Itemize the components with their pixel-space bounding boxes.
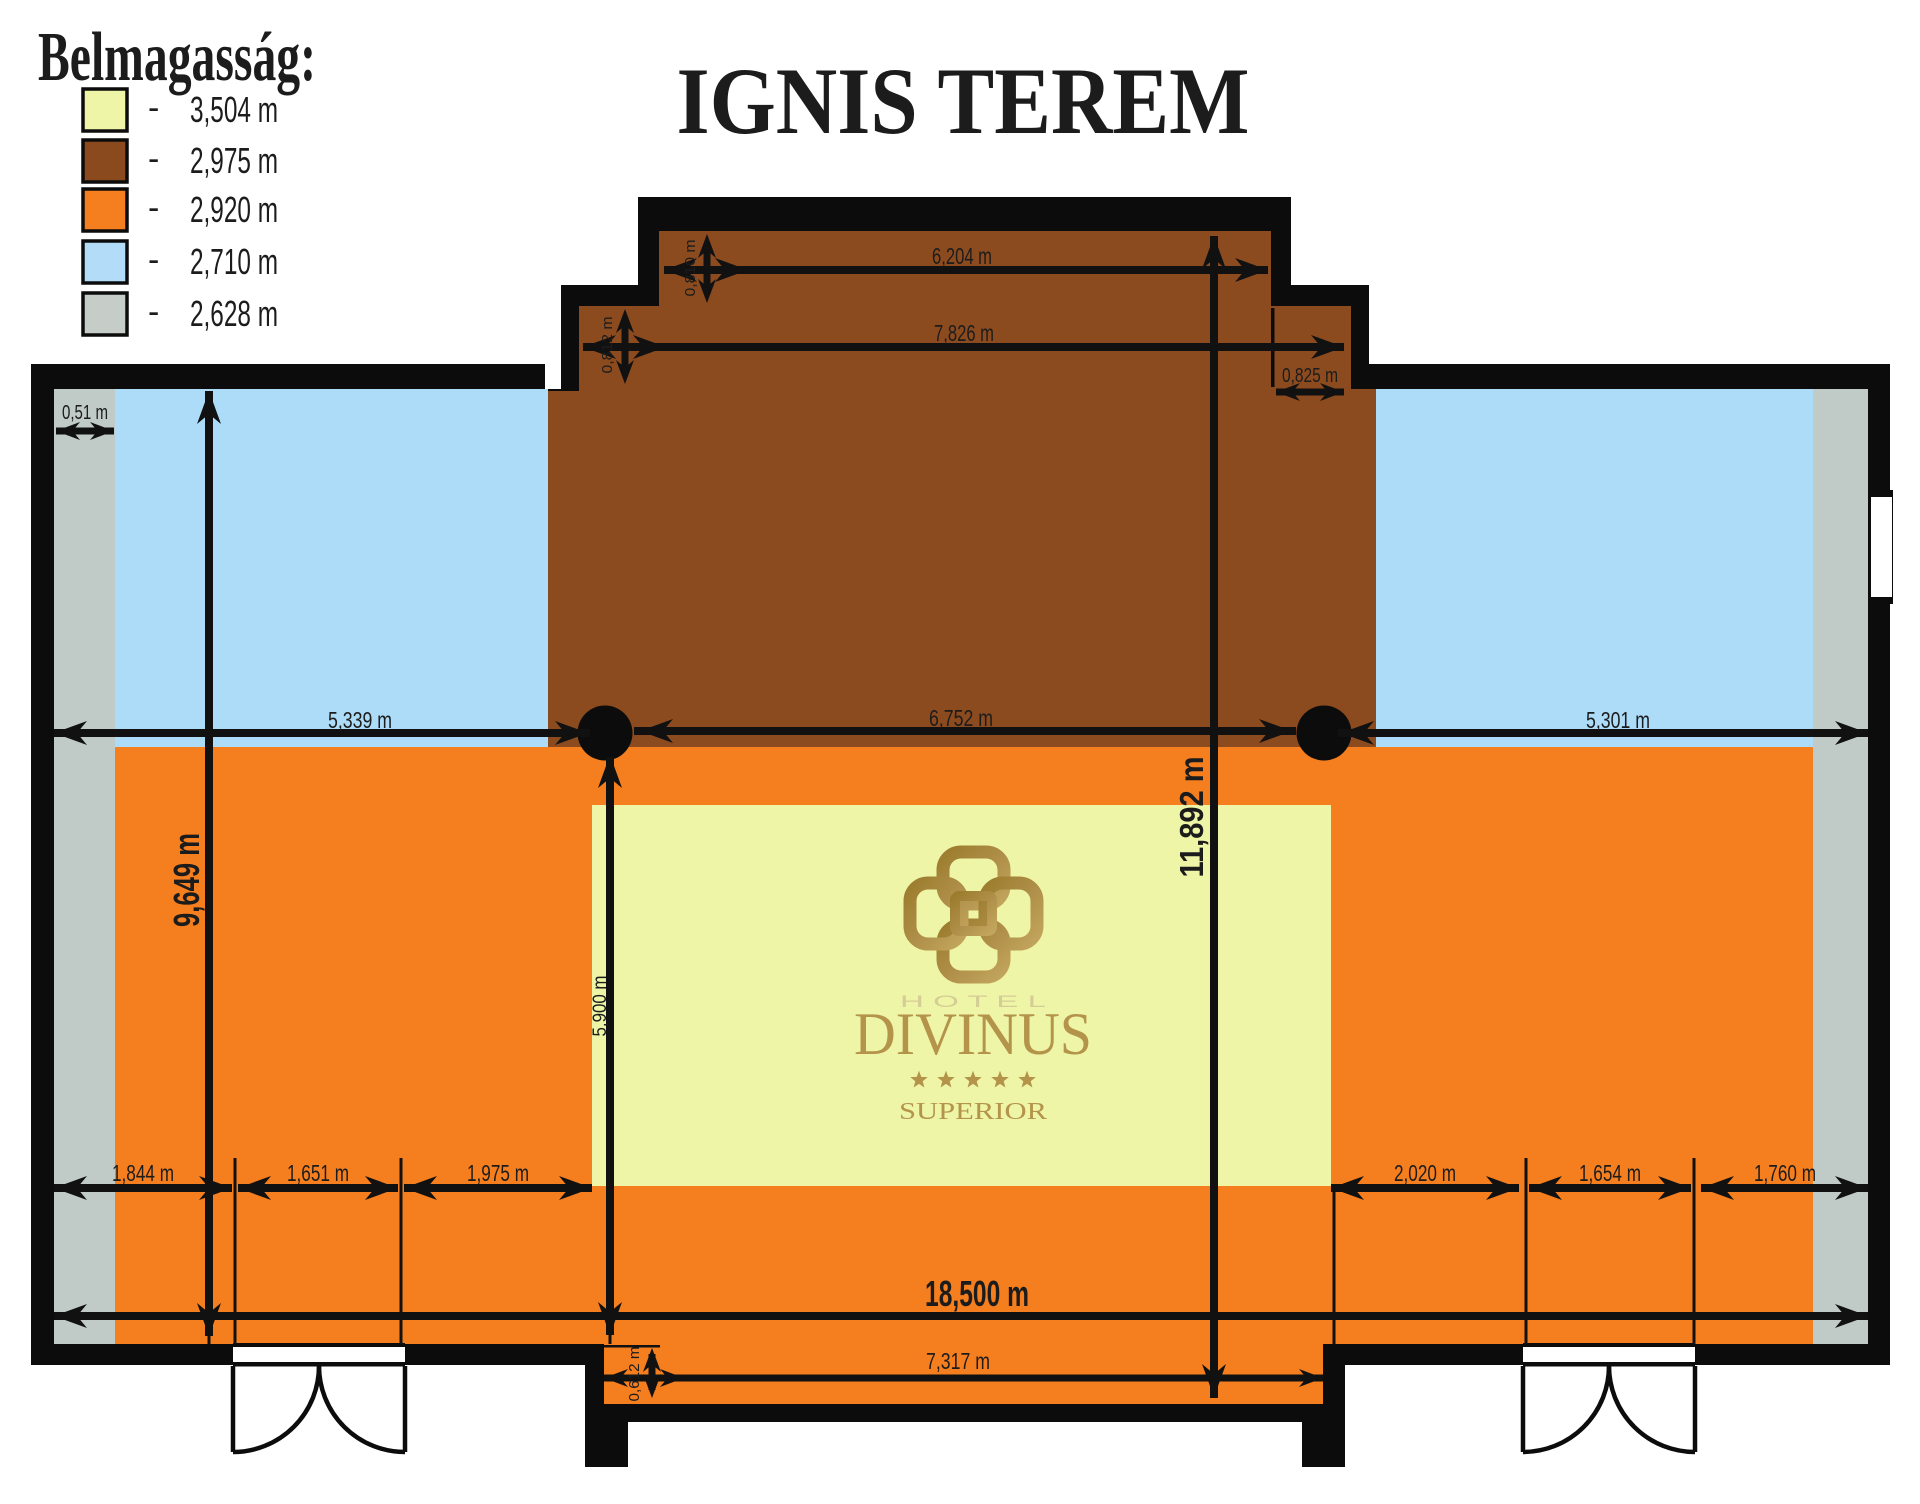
svg-text:1,844 m: 1,844 m bbox=[112, 1160, 174, 1186]
svg-text:2,020 m: 2,020 m bbox=[1394, 1160, 1456, 1186]
svg-text:3,504 m: 3,504 m bbox=[190, 89, 278, 130]
svg-text:-: - bbox=[148, 293, 159, 331]
svg-text:2,710 m: 2,710 m bbox=[190, 241, 278, 282]
svg-text:-: - bbox=[148, 241, 159, 279]
svg-text:1,975 m: 1,975 m bbox=[467, 1160, 529, 1186]
svg-text:7,826 m: 7,826 m bbox=[934, 320, 994, 346]
svg-text:1,760 m: 1,760 m bbox=[1754, 1160, 1816, 1186]
svg-text:SUPERIOR: SUPERIOR bbox=[899, 1099, 1047, 1125]
svg-text:18,500 m: 18,500 m bbox=[925, 1273, 1029, 1314]
svg-text:-: - bbox=[148, 140, 159, 178]
svg-text:6,204 m: 6,204 m bbox=[932, 243, 992, 269]
svg-text:0,825 m: 0,825 m bbox=[1282, 365, 1338, 387]
svg-text:-: - bbox=[148, 89, 159, 127]
svg-text:5,301 m: 5,301 m bbox=[1586, 707, 1650, 733]
svg-text:5,900 m: 5,900 m bbox=[590, 976, 611, 1037]
svg-text:9,649 m: 9,649 m bbox=[166, 833, 207, 927]
svg-text:2,920 m: 2,920 m bbox=[190, 189, 278, 230]
svg-text:-: - bbox=[148, 189, 159, 227]
svg-text:0,812 m: 0,812 m bbox=[599, 317, 616, 374]
svg-text:11,892 m: 11,892 m bbox=[1173, 757, 1210, 878]
svg-text:1,654 m: 1,654 m bbox=[1579, 1160, 1641, 1186]
svg-text:Belmagasság:: Belmagasság: bbox=[38, 19, 316, 96]
svg-text:1,651 m: 1,651 m bbox=[287, 1160, 349, 1186]
svg-text:0,51 m: 0,51 m bbox=[62, 402, 108, 424]
svg-text:5,339 m: 5,339 m bbox=[328, 707, 392, 733]
svg-text:7,317 m: 7,317 m bbox=[926, 1348, 990, 1374]
svg-text:6,752 m: 6,752 m bbox=[929, 705, 993, 731]
svg-text:2,628 m: 2,628 m bbox=[190, 293, 278, 334]
svg-text:0,810 m: 0,810 m bbox=[682, 240, 699, 297]
svg-text:IGNIS TEREM: IGNIS TEREM bbox=[677, 48, 1250, 154]
svg-text:DIVINUS: DIVINUS bbox=[854, 1001, 1092, 1067]
svg-text:0,612 m: 0,612 m bbox=[626, 1347, 643, 1402]
svg-text:2,975 m: 2,975 m bbox=[190, 140, 278, 181]
